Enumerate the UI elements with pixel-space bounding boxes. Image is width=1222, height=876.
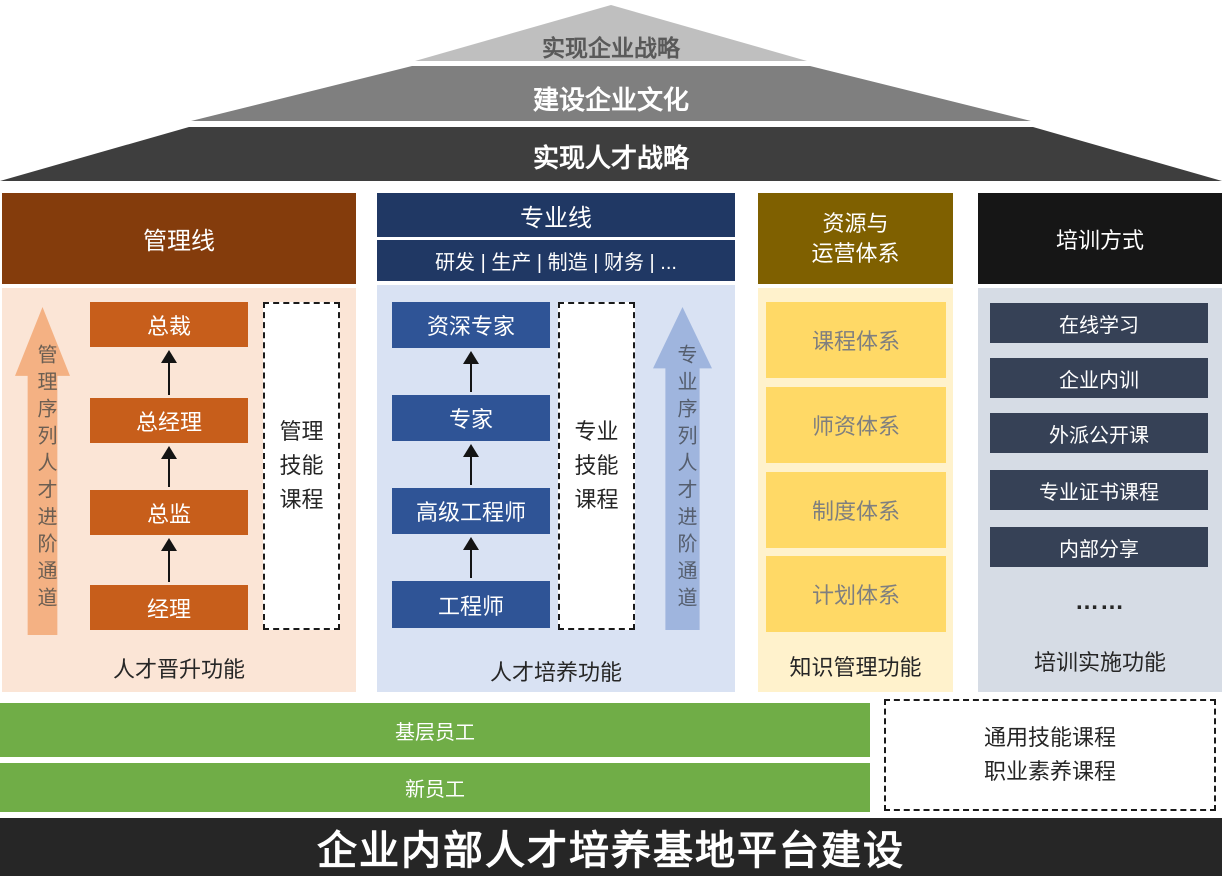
professional-level-box-senior-expert: 资深专家 <box>392 302 550 348</box>
dashed-box-line: 职业素养课程 <box>984 755 1116 789</box>
base-bar-new-staff: 新员工 <box>0 763 870 812</box>
professional-channel-arrow-label: 专业序列人才进阶通道 <box>671 344 700 614</box>
professional-skill-course-box: 专业 技能 课程 <box>558 302 635 630</box>
management-level-box-gm: 总经理 <box>90 398 248 443</box>
dashed-box-line: 课程 <box>279 483 323 517</box>
resources-box-course-system: 课程体系 <box>766 302 946 378</box>
general-course-box: 通用技能课程 职业素养课程 <box>884 699 1216 811</box>
professional-column-header: 专业线 <box>377 193 735 237</box>
training-column-header: 培训方式 <box>978 193 1222 284</box>
up-arrow-icon <box>161 446 177 487</box>
training-box-internal-training: 企业内训 <box>990 358 1208 398</box>
dashed-box-line: 专业 <box>574 415 618 449</box>
management-level-box-director: 总监 <box>90 490 248 535</box>
management-level-box-manager: 经理 <box>90 585 248 630</box>
professional-column-footer: 人才培养功能 <box>377 655 735 687</box>
up-arrow-icon <box>463 444 479 485</box>
dashed-box-line: 技能 <box>574 449 618 483</box>
pyramid-level-3-label: 实现人才战略 <box>0 138 1222 175</box>
up-arrow-icon <box>463 537 479 578</box>
training-ellipsis: …… <box>978 588 1222 616</box>
dashed-box-line: 技能 <box>279 449 323 483</box>
dashed-box-line: 课程 <box>574 483 618 517</box>
up-arrow-icon <box>161 350 177 395</box>
training-box-online-learning: 在线学习 <box>990 303 1208 343</box>
training-box-internal-sharing: 内部分享 <box>990 527 1208 567</box>
dashed-box-line: 管理 <box>279 415 323 449</box>
resources-box-plan-system: 计划体系 <box>766 556 946 632</box>
pyramid-level-1-label: 实现企业战略 <box>0 29 1222 63</box>
resources-box-teacher-system: 师资体系 <box>766 387 946 463</box>
resources-column-footer: 知识管理功能 <box>758 650 953 682</box>
management-column-header: 管理线 <box>2 193 356 284</box>
base-bar-grassroots-staff: 基层员工 <box>0 703 870 757</box>
dashed-box-line: 通用技能课程 <box>984 721 1116 755</box>
management-level-box-president: 总裁 <box>90 302 248 347</box>
professional-level-box-engineer: 工程师 <box>392 581 550 628</box>
training-column-footer: 培训实施功能 <box>978 645 1222 677</box>
management-column-footer: 人才晋升功能 <box>2 652 356 684</box>
professional-column-subheader: 研发 | 生产 | 制造 | 财务 | ... <box>377 240 735 281</box>
resources-header-line: 运营体系 <box>811 239 899 269</box>
training-box-external-courses: 外派公开课 <box>990 413 1208 453</box>
talent-platform-diagram: 实现企业战略 建设企业文化 实现人才战略 管理线 管理序列人才进阶通道 总裁 总… <box>0 0 1222 876</box>
pyramid-level-2-label: 建设企业文化 <box>0 80 1222 117</box>
training-box-certificate-courses: 专业证书课程 <box>990 470 1208 510</box>
up-arrow-icon <box>161 538 177 582</box>
management-channel-arrow-label: 管理序列人才进阶通道 <box>31 344 60 614</box>
professional-level-box-senior-engineer: 高级工程师 <box>392 488 550 534</box>
resources-column-header: 资源与 运营体系 <box>758 193 953 284</box>
bottom-title-banner: 企业内部人才培养基地平台建设 <box>0 818 1222 876</box>
resources-box-rules-system: 制度体系 <box>766 472 946 548</box>
management-skill-course-box: 管理 技能 课程 <box>263 302 340 630</box>
professional-level-box-expert: 专家 <box>392 395 550 441</box>
resources-header-line: 资源与 <box>822 209 888 239</box>
up-arrow-icon <box>463 351 479 392</box>
